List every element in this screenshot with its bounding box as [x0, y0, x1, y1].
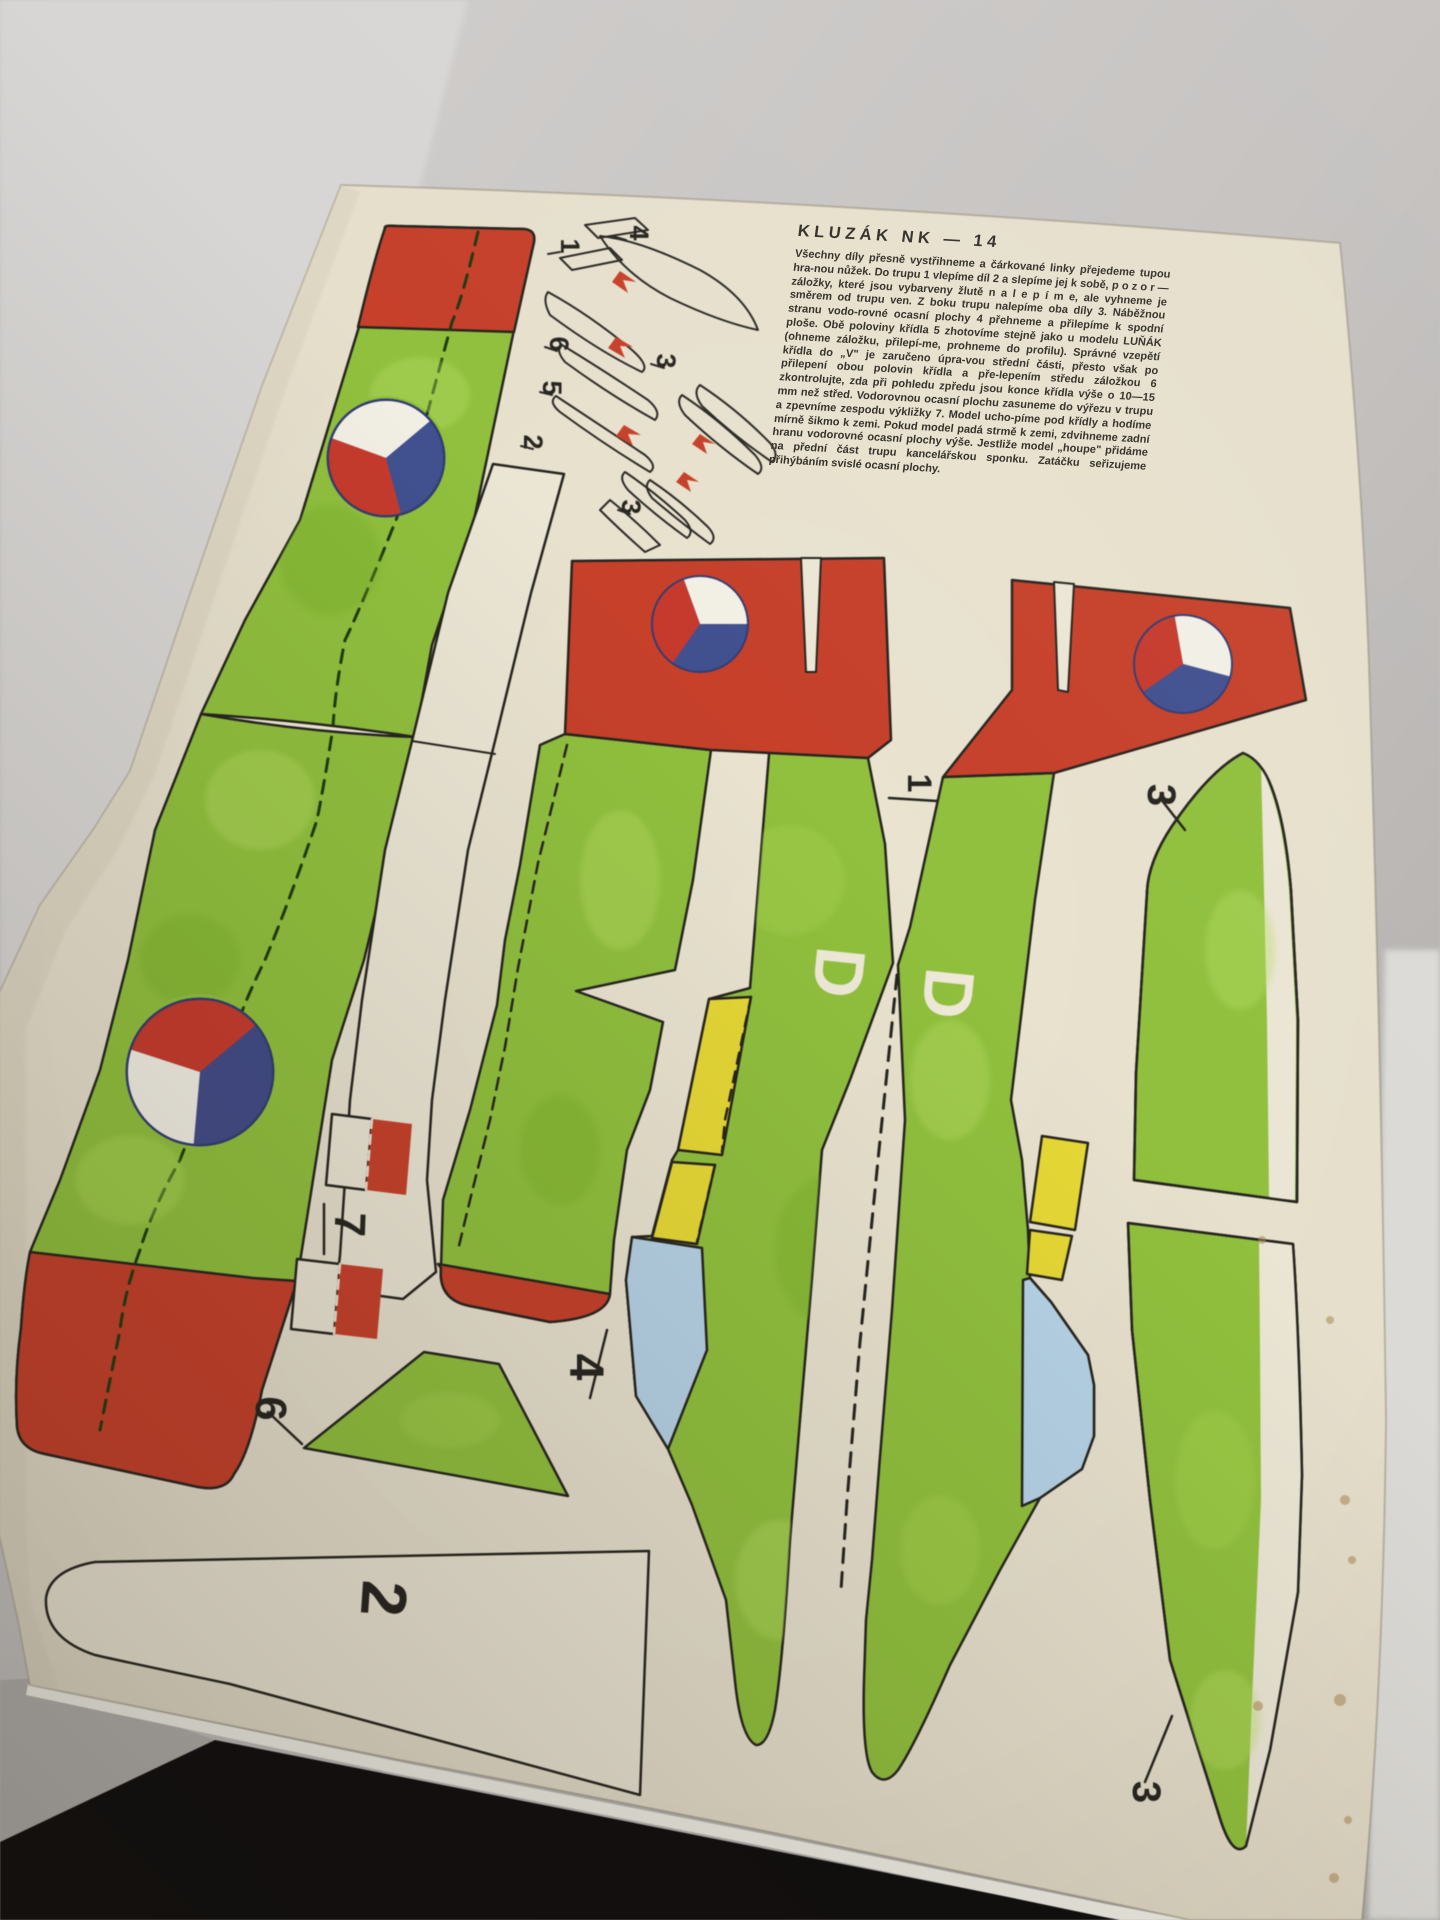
svg-text:1: 1	[900, 774, 938, 793]
svg-text:3: 3	[1124, 1781, 1168, 1803]
svg-text:6: 6	[544, 336, 574, 351]
svg-text:D: D	[797, 943, 880, 1001]
svg-text:6: 6	[246, 1395, 296, 1421]
svg-text:4: 4	[559, 1354, 612, 1381]
svg-text:7: 7	[325, 1211, 375, 1237]
svg-text:3: 3	[616, 499, 646, 514]
svg-text:2: 2	[347, 1578, 421, 1619]
svg-text:4: 4	[624, 225, 654, 240]
svg-text:D: D	[907, 964, 990, 1022]
svg-text:3: 3	[1139, 784, 1183, 806]
